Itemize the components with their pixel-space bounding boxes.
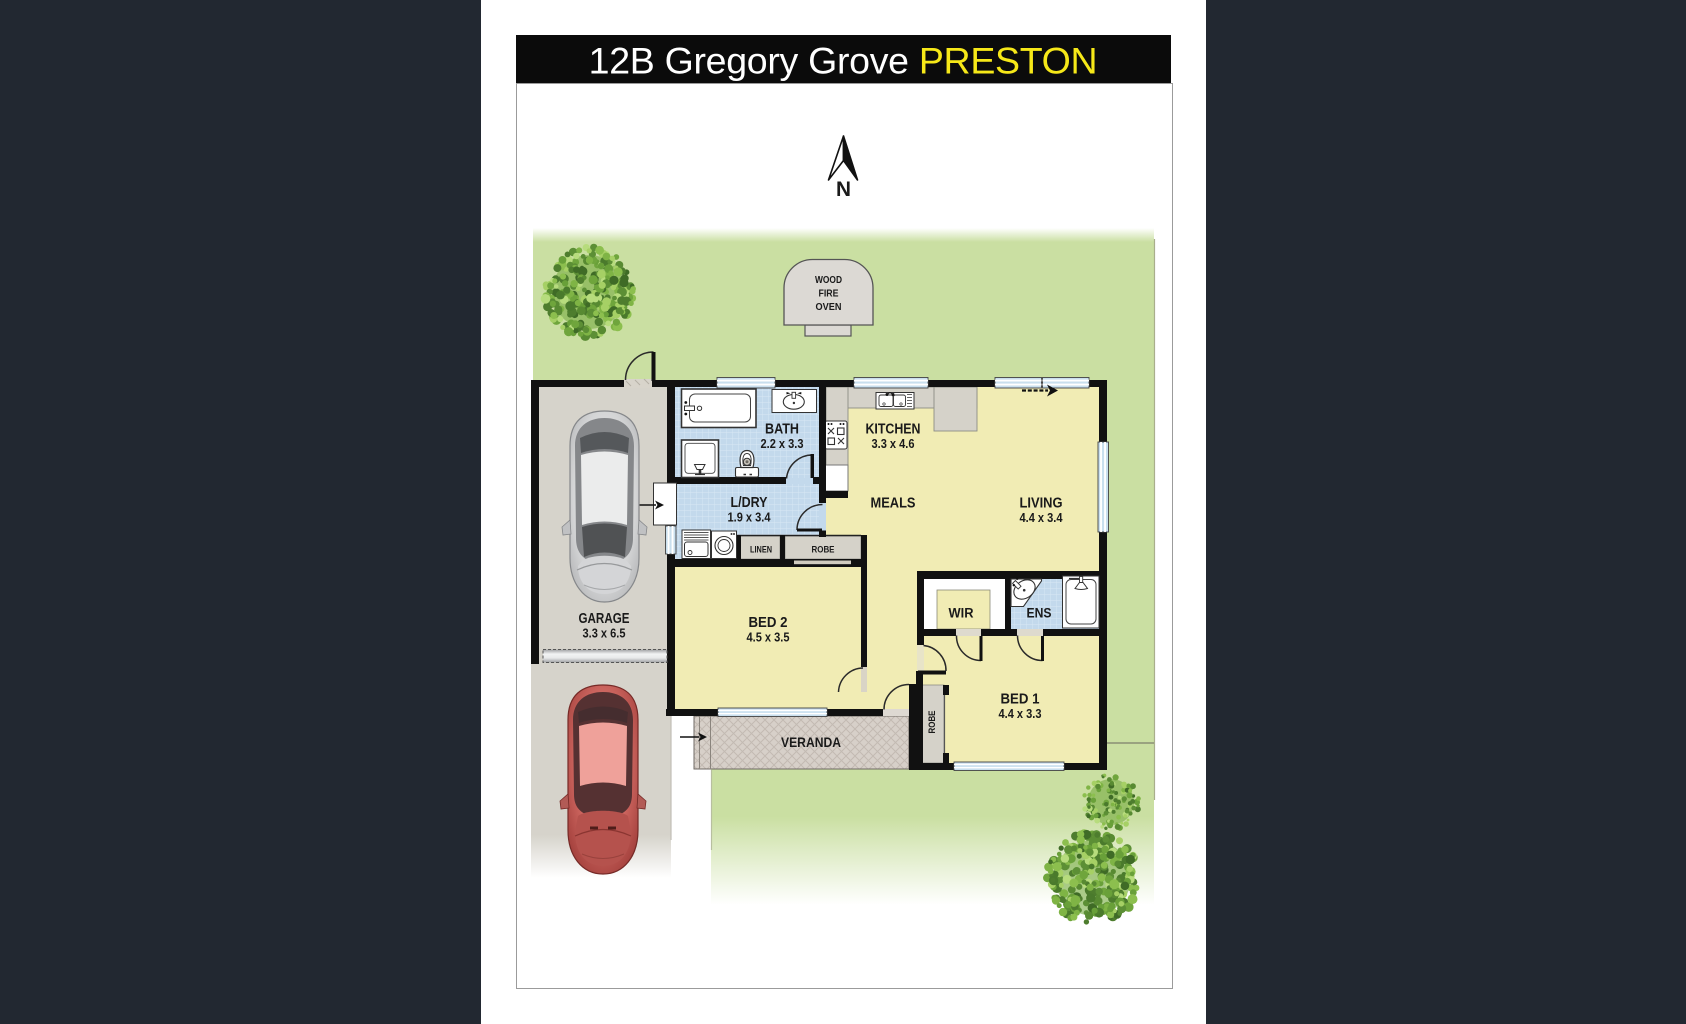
svg-text:L/DRY: L/DRY: [731, 495, 768, 511]
svg-text:1.9 x 3.4: 1.9 x 3.4: [728, 511, 771, 525]
svg-text:2.2 x 3.3: 2.2 x 3.3: [761, 437, 804, 451]
svg-text:4.5 x 3.5: 4.5 x 3.5: [747, 631, 790, 645]
svg-text:N: N: [836, 178, 851, 201]
svg-text:WOOD: WOOD: [815, 274, 842, 286]
svg-text:WIR: WIR: [949, 606, 974, 621]
svg-text:ROBE: ROBE: [927, 711, 938, 734]
svg-text:OVEN: OVEN: [816, 301, 842, 313]
svg-text:LIVING: LIVING: [1020, 496, 1063, 512]
svg-text:BED 1: BED 1: [1001, 692, 1040, 708]
svg-text:BATH: BATH: [765, 422, 799, 438]
svg-text:VERANDA: VERANDA: [781, 734, 841, 750]
svg-text:12B Gregory Grove PRESTON: 12B Gregory Grove PRESTON: [589, 40, 1098, 82]
svg-text:FIRE: FIRE: [819, 288, 839, 300]
svg-text:ENS: ENS: [1027, 606, 1052, 621]
svg-text:MEALS: MEALS: [871, 496, 916, 512]
svg-text:GARAGE: GARAGE: [579, 611, 630, 627]
svg-text:BED 2: BED 2: [749, 615, 788, 631]
svg-text:4.4 x 3.4: 4.4 x 3.4: [1020, 511, 1063, 525]
svg-text:ROBE: ROBE: [812, 545, 835, 556]
svg-text:3.3 x 4.6: 3.3 x 4.6: [872, 437, 915, 451]
svg-text:LINEN: LINEN: [750, 545, 772, 556]
svg-text:4.4 x 3.3: 4.4 x 3.3: [999, 707, 1042, 721]
svg-text:KITCHEN: KITCHEN: [866, 422, 921, 438]
svg-text:3.3 x 6.5: 3.3 x 6.5: [583, 627, 626, 641]
